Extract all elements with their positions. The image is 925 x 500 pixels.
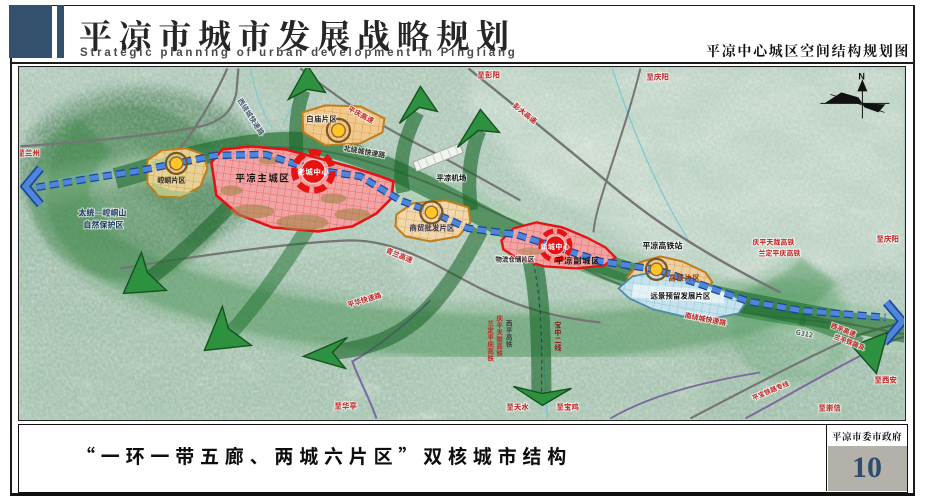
svg-text:兰定平庆高铁: 兰定平庆高铁 (758, 248, 800, 258)
svg-text:至彭阳: 至彭阳 (477, 69, 500, 80)
svg-text:兰定平庆高铁: 兰定平庆高铁 (487, 317, 494, 362)
svg-text:新城中心: 新城中心 (540, 241, 570, 251)
svg-text:老城中心: 老城中心 (297, 166, 329, 177)
svg-text:平凉副城区: 平凉副城区 (555, 255, 600, 266)
svg-text:庆平天陇高铁: 庆平天陇高铁 (496, 312, 503, 357)
svg-text:物流仓储片区: 物流仓储片区 (495, 253, 535, 263)
svg-text:N: N (858, 71, 865, 81)
svg-text:太统—崆峒山: 太统—崆峒山 (78, 207, 126, 218)
svg-text:西平高铁: 西平高铁 (505, 317, 512, 348)
svg-text:自然保护区: 自然保护区 (83, 219, 123, 230)
svg-text:至兰州: 至兰州 (20, 147, 40, 158)
svg-text:平凉机场: 平凉机场 (436, 172, 466, 183)
svg-text:庆平天陇高铁: 庆平天陇高铁 (752, 237, 794, 247)
svg-text:白庙片区: 白庙片区 (306, 114, 337, 124)
svg-text:平凉高铁站: 平凉高铁站 (642, 240, 682, 251)
svg-text:至西安: 至西安 (874, 374, 897, 385)
svg-text:平凉主城区: 平凉主城区 (235, 170, 290, 184)
svg-text:远景预留发展片区: 远景预留发展片区 (650, 290, 710, 301)
svg-text:至庆阳: 至庆阳 (646, 71, 669, 82)
svg-text:至崇信: 至崇信 (818, 402, 841, 413)
svg-text:崆峒片区: 崆峒片区 (157, 175, 185, 185)
svg-text:宝中二线: 宝中二线 (554, 320, 561, 353)
svg-text:至天水: 至天水 (506, 401, 529, 412)
svg-text:至华亭: 至华亭 (334, 400, 357, 411)
svg-text:至庆阳: 至庆阳 (876, 233, 899, 244)
svg-text:高铁片区: 高铁片区 (668, 272, 700, 283)
svg-text:至宝鸡: 至宝鸡 (556, 401, 579, 412)
svg-text:商贸批发片区: 商贸批发片区 (409, 222, 454, 233)
